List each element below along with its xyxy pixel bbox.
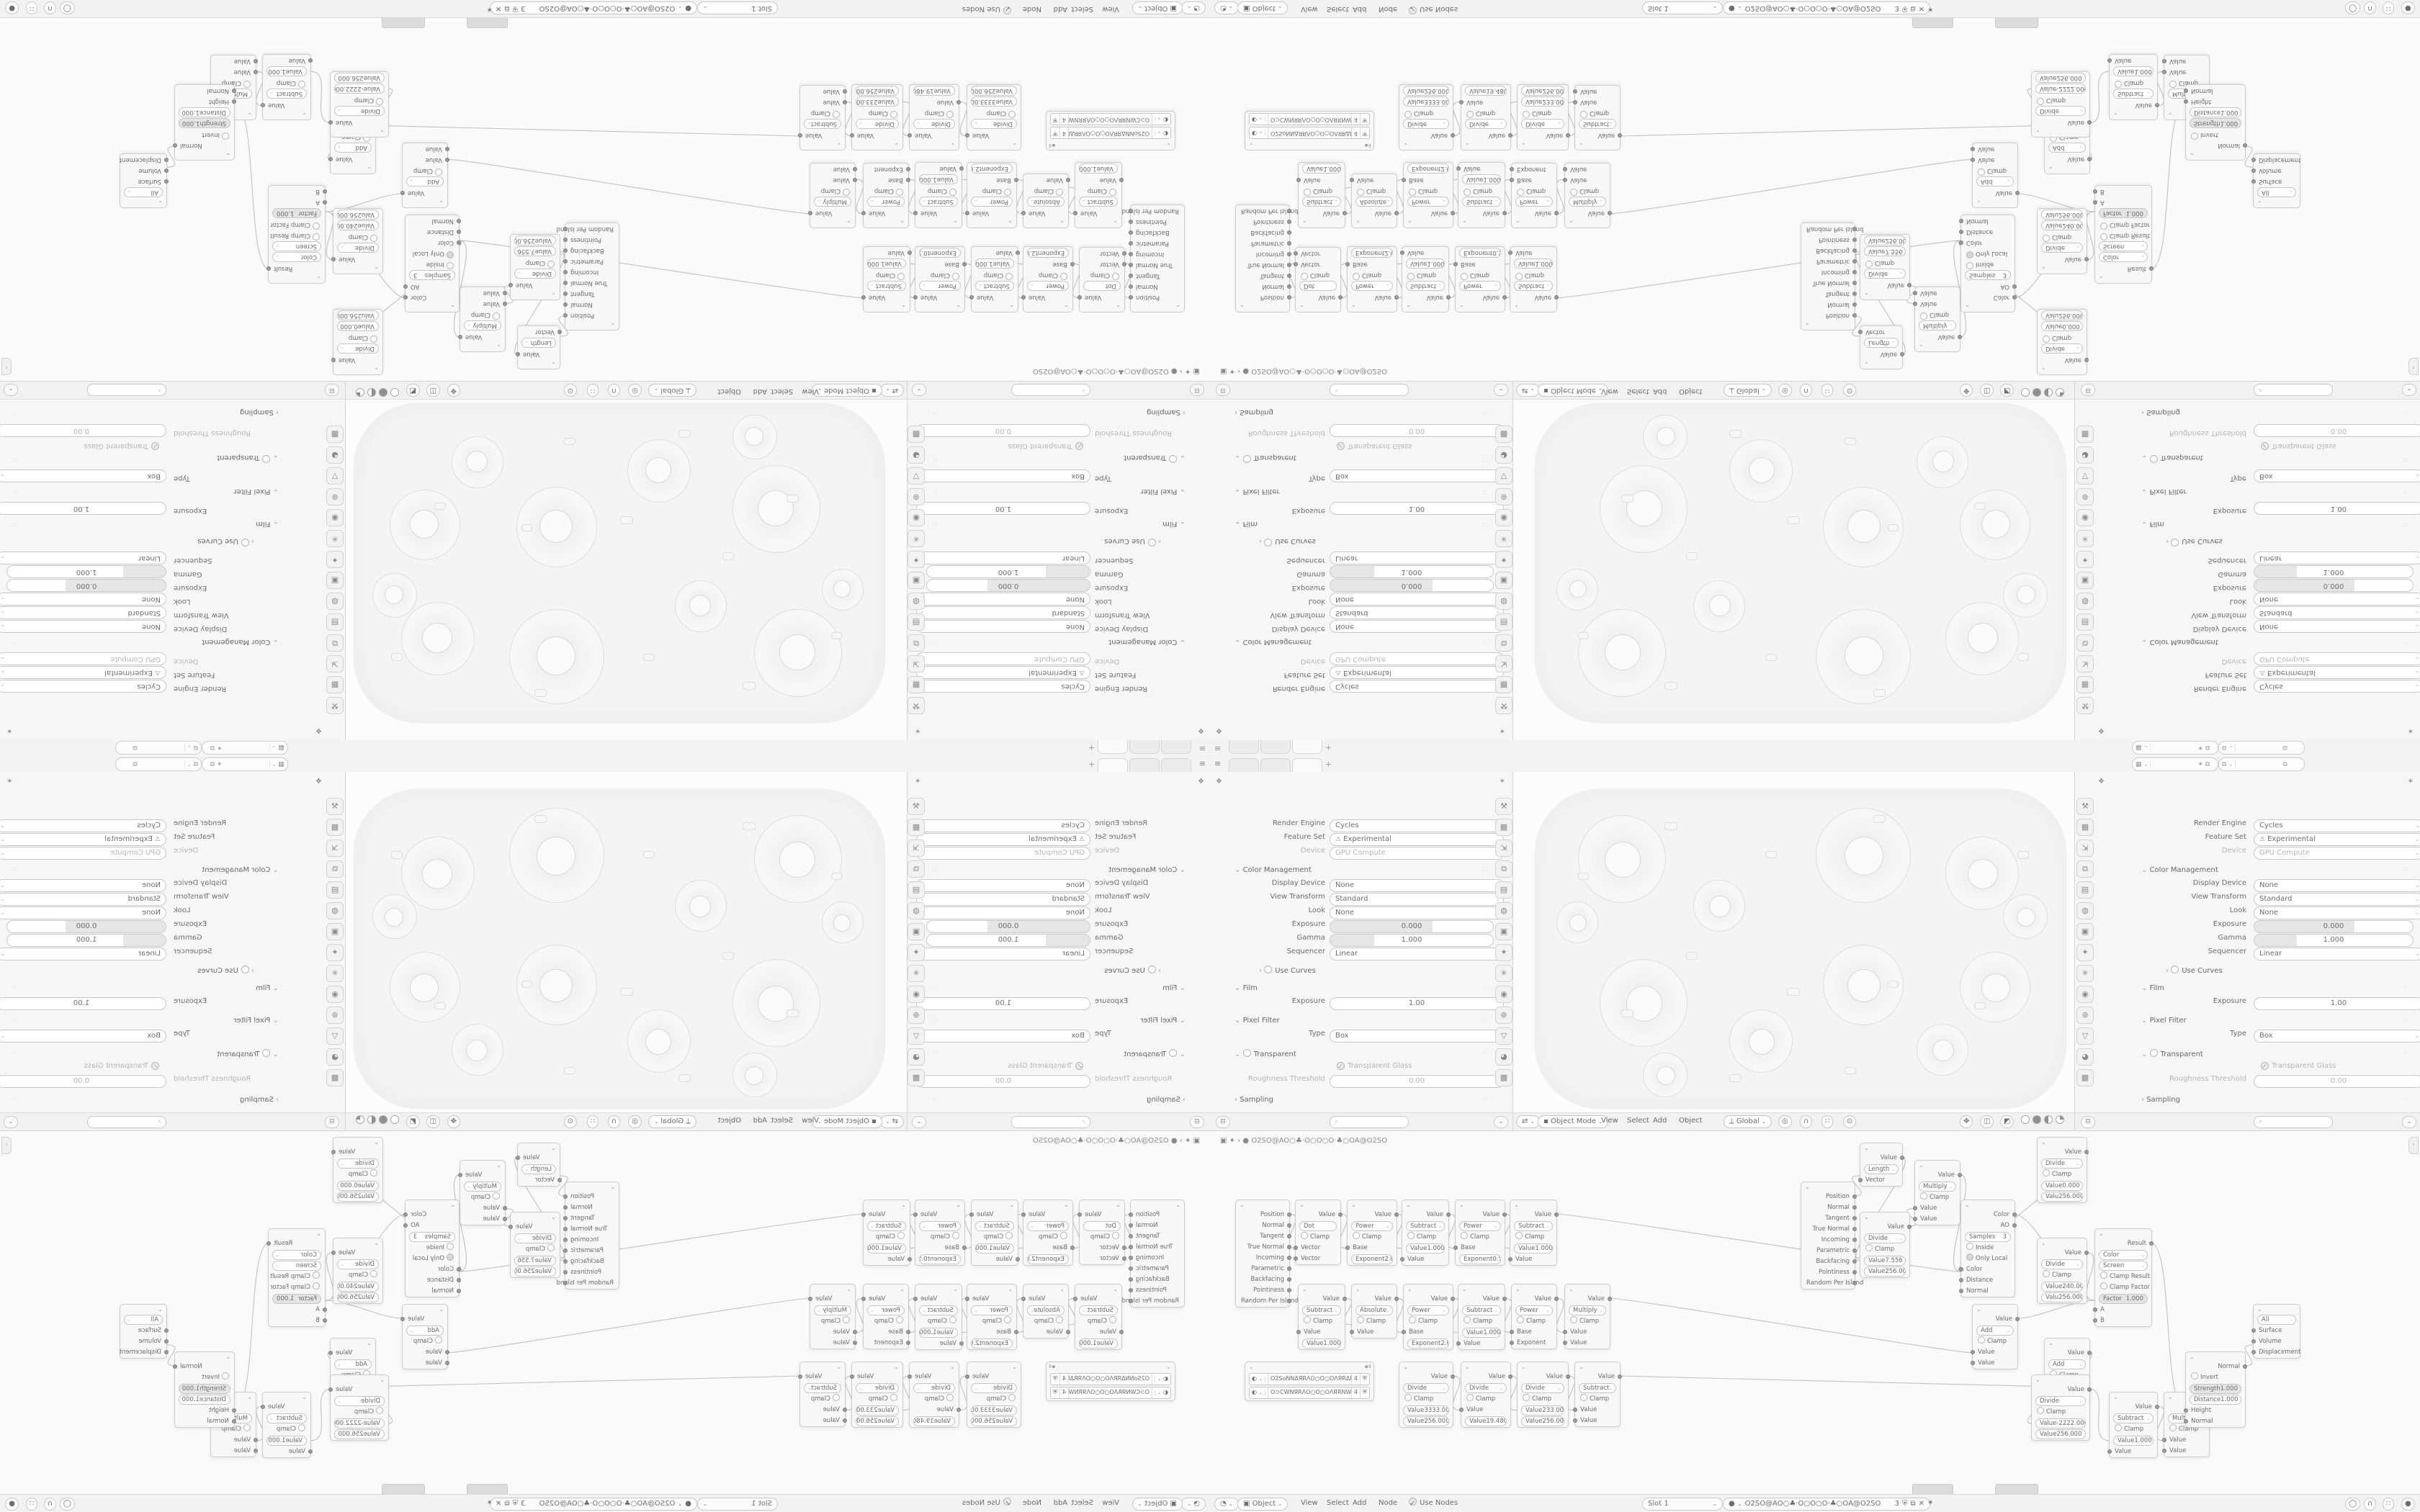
input-socket[interactable]: [1456, 166, 1461, 171]
shader-node[interactable]: ⌄ValuePower⌄ClampBaseExponent2.000: [1403, 1284, 1453, 1350]
output-socket[interactable]: [1129, 1256, 1133, 1260]
output-socket[interactable]: [563, 227, 568, 231]
operation-dropdown[interactable]: Subtract⌄: [2113, 89, 2154, 99]
copy-icon[interactable]: ⧉: [2205, 761, 2210, 768]
output-socket[interactable]: [1446, 295, 1451, 300]
node-checkbox[interactable]: [946, 1394, 954, 1401]
input-socket[interactable]: [1913, 1217, 1917, 1221]
shader-node[interactable]: ⌄ValueAbsolute⌄ClampValue: [1351, 1284, 1397, 1338]
value-field[interactable]: Valu256.000: [337, 310, 379, 320]
modifiers-tab-icon[interactable]: ✦: [907, 551, 925, 568]
panel-section[interactable]: ⌄ Pixel Filter∷: [2141, 1017, 2412, 1025]
output-socket[interactable]: [1343, 1297, 1347, 1301]
shader-node[interactable]: ⌄ValueSubtract⌄ClampValueValue1.000: [1298, 162, 1345, 228]
search-input[interactable]: ⌕: [1330, 1116, 1409, 1128]
output-socket[interactable]: [2155, 1405, 2159, 1409]
shader-node[interactable]: ⌄ValueSubtract⌄ClampValue1.000Value: [1458, 1284, 1505, 1350]
shader-node[interactable]: ⌄ValueDivide⌄ClampValue-2222.000Value256…: [330, 1374, 389, 1441]
output-socket[interactable]: [1900, 352, 1904, 356]
material-tab-icon[interactable]: ◕: [2076, 1048, 2094, 1066]
shader-node[interactable]: ⌄All⌄SurfaceVolumeDisplacement: [2253, 1304, 2300, 1359]
shader-node[interactable]: ⌄ValueDivide⌄ClampValueValue19.480: [909, 84, 959, 150]
input-socket[interactable]: [1913, 302, 1917, 306]
scene-tab-icon[interactable]: ▤: [1495, 881, 1512, 899]
output-socket[interactable]: [808, 1297, 812, 1301]
value-field[interactable]: Value0.000: [337, 321, 379, 331]
particles-tab-icon[interactable]: ✳: [907, 530, 925, 547]
node-checkbox[interactable]: [370, 336, 377, 343]
operation-dropdown[interactable]: Power⌄: [971, 1305, 1013, 1315]
value-field[interactable]: Value1.000: [1406, 258, 1445, 269]
output-socket[interactable]: [1077, 1212, 1082, 1217]
operation-dropdown[interactable]: Divide⌄: [1403, 1383, 1449, 1393]
input-socket[interactable]: [164, 179, 169, 184]
value-field[interactable]: Value256.000: [514, 235, 556, 246]
operation-dropdown[interactable]: Multiply⌄: [464, 320, 501, 330]
input-socket[interactable]: [1066, 1330, 1070, 1334]
value-field[interactable]: Strength1.000: [179, 118, 230, 128]
shader-node[interactable]: ⌄ValueDivide⌄ClampValueValue19.480: [909, 1362, 959, 1428]
fake-user-shield-icon[interactable]: ⛨: [1902, 2, 1908, 14]
value-field[interactable]: Value233.000: [856, 1405, 899, 1416]
operation-dropdown[interactable]: Divide⌄: [337, 1259, 379, 1269]
world-tab-icon[interactable]: ◍: [326, 902, 344, 919]
material-tab-icon[interactable]: ◕: [326, 1048, 344, 1066]
output-socket[interactable]: [1129, 1277, 1133, 1282]
editor-type-button[interactable]: ◔ ⌄: [1214, 1, 1239, 14]
shader-node[interactable]: ⌄ValuePower⌄ClampBaseExponent2.000: [967, 162, 1017, 228]
panel-section[interactable]: ⌄ Color Management∷: [1234, 866, 1492, 874]
shader-node[interactable]: ⌄ValueAdd⌄ClampValueValue: [1972, 1304, 2018, 1369]
input-socket[interactable]: [232, 1419, 236, 1423]
node-checkbox[interactable]: [2191, 132, 2198, 140]
node-checkbox[interactable]: [2115, 1424, 2122, 1431]
physics-tab-icon[interactable]: ◉: [2076, 509, 2094, 526]
shader-node-editor[interactable]: ▣ ✦ › ● O2SO@AO○♣·O○O○O·♣○OA@O2SO‹⌄Posit…: [0, 17, 1210, 382]
look-field[interactable]: None⌄: [916, 593, 1090, 606]
shader-node[interactable]: ⌄ResultColor⌄Screen⌄Clamp ResultClamp Fa…: [268, 185, 326, 284]
value-field[interactable]: Value1.000: [1079, 1338, 1118, 1349]
look-field[interactable]: None⌄: [2254, 593, 2420, 606]
node-collapse-icon[interactable]: ⌄: [405, 302, 459, 312]
input-socket[interactable]: [1294, 1246, 1298, 1250]
value-field[interactable]: Valu256.000: [337, 210, 379, 220]
node-checkbox[interactable]: [1301, 1232, 1308, 1239]
output-socket[interactable]: [400, 191, 405, 195]
xray-icon[interactable]: ◩: [2000, 384, 2014, 397]
output-socket[interactable]: [1451, 1374, 1455, 1379]
input-socket[interactable]: [1959, 1289, 1963, 1293]
output-socket[interactable]: [1287, 209, 1291, 213]
node-checkbox[interactable]: [952, 1232, 959, 1239]
input-socket[interactable]: [2162, 1438, 2166, 1442]
input-socket[interactable]: [1563, 1330, 1567, 1334]
node-checkbox[interactable]: [243, 1424, 251, 1431]
node-checkbox[interactable]: [949, 1316, 956, 1323]
input-socket[interactable]: [1456, 1341, 1461, 1346]
operation-dropdown[interactable]: Subtract⌄: [919, 1305, 958, 1315]
collapse-icon[interactable]: ⌄: [2402, 384, 2416, 396]
output-socket[interactable]: [1129, 295, 1133, 300]
shader-node[interactable]: ⌄ValueDivide⌄ClampValue0.000Valu256.000: [333, 309, 383, 375]
input-socket[interactable]: [445, 1350, 449, 1354]
shader-node[interactable]: ⌄ValuePower⌄ClampBaseExponent2.000: [1347, 1200, 1397, 1266]
node-checkbox[interactable]: [222, 132, 229, 140]
node-checkbox[interactable]: [2169, 1424, 2177, 1431]
output-socket[interactable]: [861, 295, 866, 300]
node-checkbox[interactable]: [2100, 233, 2107, 240]
node-checkbox[interactable]: [1357, 1316, 1364, 1323]
output-socket[interactable]: [2015, 191, 2020, 195]
output-socket[interactable]: [861, 1212, 866, 1217]
shader-node[interactable]: ⌄ValueSubtract⌄ClampValue1.000Value: [915, 1284, 962, 1350]
node-collapse-icon[interactable]: ⌄: [333, 365, 382, 374]
input-socket[interactable]: [323, 189, 327, 194]
panel-section[interactable]: ⌄ Color Management∷: [928, 866, 1186, 874]
operation-dropdown[interactable]: Absolute⌄: [1027, 197, 1065, 207]
workspace-tab[interactable]: [1229, 758, 1259, 773]
display-device-field[interactable]: None⌄: [2254, 879, 2420, 892]
snap-mode-icon[interactable]: ∷: [1821, 1115, 1833, 1128]
world-tab-icon[interactable]: ◍: [2076, 902, 2094, 919]
output-socket[interactable]: [516, 1156, 520, 1160]
shader-node[interactable]: ⌄ValueSubtract⌄ClampValue1.000Value: [863, 1200, 910, 1266]
node-collapse-icon[interactable]: ⌄: [1512, 218, 1556, 228]
input-socket[interactable]: [323, 1308, 327, 1312]
object-data-tab-icon[interactable]: ▽: [326, 1027, 344, 1045]
node-collapse-icon[interactable]: ⌄: [565, 320, 619, 330]
viewport-menu-view[interactable]: View: [802, 1115, 819, 1127]
node-checkbox[interactable]: [2043, 336, 2050, 343]
node-collapse-icon[interactable]: ⌄: [1296, 1200, 1340, 1210]
exposure-field[interactable]: 1.00: [0, 502, 166, 515]
shading-wireframe-icon[interactable]: [390, 1115, 400, 1127]
node-collapse-icon[interactable]: ⌄: [800, 140, 845, 150]
input-socket[interactable]: [1573, 89, 1577, 94]
input-socket[interactable]: [1402, 178, 1406, 182]
output-socket[interactable]: [1129, 1299, 1133, 1303]
input-socket[interactable]: [1400, 1257, 1404, 1261]
input-socket[interactable]: [557, 1178, 562, 1182]
constraints-tab-icon[interactable]: ⊛: [2076, 1007, 2094, 1024]
device-field[interactable]: GPU Compute⌄: [916, 652, 1090, 665]
view-layer-selector[interactable]: ⧉⌄⧉: [2218, 757, 2305, 771]
display-device-field[interactable]: None⌄: [1330, 620, 1504, 633]
node-collapse-icon[interactable]: ⌄: [864, 218, 908, 228]
value-field[interactable]: Value1.000: [1462, 174, 1501, 184]
add-workspace-button[interactable]: +: [1088, 743, 1095, 752]
value-field[interactable]: Value7.556: [514, 246, 556, 256]
operation-dropdown[interactable]: Absolute⌄: [1027, 1305, 1065, 1315]
render-engine-field[interactable]: Cycles⌄: [916, 680, 1090, 693]
shader-node-editor[interactable]: ▣ ✦ › ● O2SO@AO○♣·O○O○O·♣○OA@O2SO‹⌄Posit…: [0, 1130, 1210, 1495]
input-socket[interactable]: [457, 1267, 461, 1272]
output-socket[interactable]: [400, 1317, 405, 1321]
node-checkbox[interactable]: [1004, 189, 1011, 196]
sequencer-field[interactable]: Linear⌄: [1330, 948, 1504, 960]
value-field[interactable]: Value1.000: [1302, 163, 1341, 174]
section-checkbox[interactable]: [262, 455, 270, 463]
workspace-tab[interactable]: [1260, 739, 1291, 754]
operation-dropdown[interactable]: Divide⌄: [514, 269, 556, 279]
operation-dropdown[interactable]: Add⌄: [334, 1359, 372, 1369]
value-field[interactable]: Valu256.000: [337, 1192, 379, 1202]
snap-mode-icon[interactable]: ∷: [587, 384, 599, 397]
input-socket[interactable]: [164, 1339, 169, 1344]
node-collapse-icon[interactable]: ⌄: [331, 127, 388, 137]
node-checkbox[interactable]: [313, 1282, 320, 1290]
node-collapse-icon[interactable]: ⌄: [1456, 302, 1505, 312]
shader-node[interactable]: ⌄ValueDivide⌄ClampValue233.000Value256.0…: [1517, 84, 1569, 150]
pin-icon[interactable]: ✶: [1927, 1498, 1933, 1509]
shader-node[interactable]: ⌄ValueMultiply⌄ClampValueValue: [810, 163, 856, 228]
output-socket[interactable]: [1287, 1223, 1291, 1228]
value-field[interactable]: Value19.480: [913, 86, 955, 96]
physics-tab-icon[interactable]: ◉: [2076, 986, 2094, 1003]
output-tab-icon[interactable]: ⇲: [326, 655, 344, 672]
use-nodes-checkbox[interactable]: ✓Use Nodes: [962, 1498, 1011, 1509]
node-checkbox[interactable]: [2100, 1282, 2107, 1290]
output-socket[interactable]: [2087, 157, 2092, 161]
operation-dropdown[interactable]: Subtract⌄: [804, 1383, 841, 1393]
node-checkbox[interactable]: [298, 1424, 305, 1431]
input-socket[interactable]: [2162, 59, 2166, 63]
node-collapse-icon[interactable]: ⌄: [1860, 1143, 1902, 1153]
output-socket[interactable]: [1451, 133, 1455, 138]
value-field[interactable]: Value0.000: [337, 1181, 379, 1191]
operation-dropdown[interactable]: Screen⌄: [272, 1261, 321, 1271]
output-socket[interactable]: [1129, 263, 1133, 267]
output-socket[interactable]: [328, 120, 333, 125]
node-collapse-icon[interactable]: ⌄: [2038, 264, 2087, 274]
scene-selector[interactable]: ▦⌄✶⧉: [202, 757, 288, 771]
node-collapse-icon[interactable]: ⌄: [1399, 1362, 1453, 1372]
output-socket[interactable]: [1021, 1212, 1026, 1217]
operation-dropdown[interactable]: Multiply⌄: [1919, 320, 1956, 330]
shader-node[interactable]: ⌄ValueDivide⌄ClampValue0.000Valu256.000: [2037, 1137, 2087, 1203]
output-socket[interactable]: [965, 211, 969, 215]
input-socket[interactable]: [1913, 291, 1917, 295]
node-checkbox[interactable]: [313, 233, 320, 240]
datablock-selector[interactable]: ◐⌄O⊃CWNЯRΛO○O○OΛЯRNWC⊃O4⛨: [1050, 113, 1171, 125]
operation-dropdown[interactable]: All⌄: [2257, 1315, 2296, 1325]
operation-dropdown[interactable]: All⌄: [2257, 187, 2296, 197]
panel-section[interactable]: ⌄ Pixel Filter∷: [928, 487, 1186, 495]
shader-node[interactable]: ⌄All⌄SurfaceVolumeDisplacement: [2253, 153, 2300, 208]
output-socket[interactable]: [331, 1251, 336, 1255]
operation-dropdown[interactable]: Power⌄: [1351, 1221, 1393, 1231]
input-socket[interactable]: [1400, 251, 1404, 255]
tool-tab-icon[interactable]: ⚒: [1495, 798, 1512, 815]
input-socket[interactable]: [457, 1289, 461, 1293]
input-socket[interactable]: [1959, 230, 1963, 234]
output-socket[interactable]: [1129, 241, 1133, 246]
shader-node[interactable]: ⌄ValueDivide⌄ClampValue7.556Value256.000: [510, 234, 560, 300]
output-socket[interactable]: [1287, 1245, 1291, 1249]
output-socket[interactable]: [1852, 248, 1857, 253]
output-socket[interactable]: [913, 1297, 918, 1301]
panel-section[interactable]: ⌄ Transparent∷: [1234, 454, 1492, 463]
exposure-field[interactable]: 1.00: [0, 997, 166, 1010]
node-checkbox[interactable]: [447, 1243, 454, 1250]
material-datablock[interactable]: ●⌄ O2SO@AO○♣·O○O○O·♣○OA@O2SO 3 ⛨ ⧉ ✕: [1723, 1498, 1930, 1511]
node-collapse-icon[interactable]: ⌄: [405, 1200, 459, 1210]
input-socket[interactable]: [853, 1330, 857, 1334]
output-socket[interactable]: [266, 266, 271, 271]
tool-tab-icon[interactable]: ⚒: [907, 798, 925, 815]
output-socket[interactable]: [1446, 1212, 1451, 1217]
input-socket[interactable]: [1959, 240, 1963, 245]
operation-dropdown[interactable]: Subtract⌄: [1406, 1221, 1445, 1231]
texture-tab-icon[interactable]: ▩: [2076, 1069, 2094, 1086]
value-field[interactable]: Value256.000: [971, 1416, 1017, 1426]
node-checkbox[interactable]: [1109, 189, 1116, 196]
scene-selector[interactable]: ▦⌄✶⧉: [2132, 757, 2218, 771]
node-checkbox[interactable]: [1461, 1232, 1468, 1239]
panel-section[interactable]: ⌄ Pixel Filter∷: [1234, 487, 1492, 495]
operation-dropdown[interactable]: Subtract⌄: [975, 1221, 1014, 1231]
node-collapse-icon[interactable]: ⌄: [263, 1392, 310, 1402]
partial-node[interactable]: [1995, 1484, 2038, 1495]
node-collapse-icon[interactable]: ⌄: [1961, 302, 2015, 312]
particles-tab-icon[interactable]: ✳: [1495, 965, 1512, 982]
operation-dropdown[interactable]: Length⌄: [1864, 1164, 1899, 1174]
datablock-selector[interactable]: ◐⌄O⊃CWNЯRΛO○O○OΛЯRNWC⊃O4⛨: [1249, 1387, 1370, 1399]
look-field[interactable]: None⌄: [0, 906, 166, 919]
panel-section[interactable]: ⌄ Film∷: [2141, 520, 2412, 528]
output-socket[interactable]: [328, 1351, 333, 1355]
orientation-selector[interactable]: ⟂ Global ⌄: [1724, 1115, 1772, 1128]
shader-node[interactable]: ⌄PositionNormalTangentTrue NormalIncomin…: [1235, 1200, 1290, 1308]
node-menu-select[interactable]: Select: [1327, 3, 1349, 14]
shader-node[interactable]: ⌄ValuePower⌄ClampBaseExponent0.500: [1455, 246, 1505, 312]
output-socket[interactable]: [1554, 211, 1559, 215]
output-socket[interactable]: [508, 283, 513, 287]
shader-node[interactable]: ⌄ValueDivide⌄ClampValue7.556Value256.000: [510, 1212, 560, 1278]
input-socket[interactable]: [2251, 179, 2256, 184]
shader-node[interactable]: ⌄ValueDivide⌄ClampValue3333.000Value256.…: [1399, 84, 1453, 150]
output-socket[interactable]: [261, 1405, 265, 1409]
shader-node[interactable]: ⌄ValueSubtract⌄ClampValue1.000Value: [863, 246, 910, 312]
node-checkbox[interactable]: [1301, 273, 1308, 280]
node-collapse-icon[interactable]: ⌄: [1973, 198, 2017, 207]
input-socket[interactable]: [1971, 1350, 1975, 1354]
output-socket[interactable]: [1852, 1259, 1857, 1264]
input-socket[interactable]: [445, 158, 449, 162]
workspace-tab[interactable]: [1229, 739, 1259, 754]
copy-icon[interactable]: ⧉: [504, 2, 509, 14]
panel-section[interactable]: › Sampling∷: [8, 1096, 279, 1104]
output-socket[interactable]: [563, 259, 568, 264]
datablock-selector[interactable]: ◐⌄O2SoNNΔЯRΛO○O○OΛЯRΔNNo2SO4⛨: [1249, 127, 1370, 139]
output-socket[interactable]: [563, 1194, 568, 1199]
view-layer-tab-icon[interactable]: ⧉: [2076, 634, 2094, 652]
node-collapse-icon[interactable]: ⌄: [864, 1284, 908, 1294]
particles-tab-icon[interactable]: ✳: [1495, 530, 1512, 547]
output-socket[interactable]: [2243, 143, 2247, 148]
node-checkbox[interactable]: [1580, 1394, 1587, 1401]
input-socket[interactable]: [1563, 167, 1567, 171]
shader-node[interactable]: ⌄ColorAOSamples3InsideOnly LocalColorDis…: [405, 215, 460, 312]
node-checkbox[interactable]: [1304, 1316, 1311, 1323]
output-socket[interactable]: [861, 1297, 866, 1301]
overlays-icon[interactable]: ◫: [1980, 384, 1994, 397]
shader-node[interactable]: ⌄ValueSubtract⌄ClampValue1.000Value: [971, 246, 1018, 312]
output-socket[interactable]: [563, 238, 568, 242]
pin-icon[interactable]: ✶: [915, 778, 920, 786]
input-socket[interactable]: [906, 167, 910, 171]
input-socket[interactable]: [2184, 1419, 2188, 1423]
operation-dropdown[interactable]: Divide⌄: [334, 1396, 385, 1406]
output-socket[interactable]: [913, 295, 918, 300]
output-socket[interactable]: [563, 248, 568, 253]
output-socket[interactable]: [1077, 295, 1082, 300]
sequencer-field[interactable]: Linear⌄: [1330, 552, 1504, 564]
node-collapse-icon[interactable]: ⌄: [1565, 1284, 1610, 1294]
operation-dropdown[interactable]: Divide⌄: [1864, 269, 1906, 279]
input-socket[interactable]: [2184, 99, 2188, 104]
output-socket[interactable]: [1852, 259, 1857, 264]
input-socket[interactable]: [1350, 178, 1354, 182]
value-field[interactable]: Value1.000: [919, 174, 958, 184]
node-collapse-icon[interactable]: ⌄: [331, 1375, 388, 1385]
output-socket[interactable]: [563, 1227, 568, 1231]
value-field[interactable]: Value-2222.000: [334, 1418, 385, 1428]
pin-icon[interactable]: ✶: [1500, 778, 1505, 786]
input-socket[interactable]: [906, 1341, 910, 1345]
operation-dropdown[interactable]: Add⌄: [1976, 176, 2014, 186]
input-socket[interactable]: [1453, 262, 1458, 266]
value-field[interactable]: Value233.000: [1521, 96, 1564, 107]
world-tab-icon[interactable]: ◍: [907, 593, 925, 610]
partial-node[interactable]: [1995, 17, 2038, 28]
node-collapse-icon[interactable]: ⌄: [1075, 218, 1121, 228]
partial-node[interactable]: [467, 1484, 508, 1495]
shader-node[interactable]: ⌄ValuePower⌄ClampBaseExponent: [863, 1284, 909, 1349]
node-collapse-icon[interactable]: ⌄: [910, 140, 959, 150]
view-layer-tab-icon[interactable]: ⧉: [907, 860, 925, 878]
snap-magnet-icon[interactable]: ∩: [608, 384, 620, 397]
panel-section[interactable]: ⌄ Pixel Filter∷: [928, 1017, 1186, 1025]
shader-node[interactable]: ⌄ValueMultiply⌄ClampValueValue: [460, 1160, 506, 1225]
snap-mode-icon[interactable]: ∷: [26, 1498, 37, 1511]
node-checkbox[interactable]: [547, 1244, 555, 1251]
node-collapse-icon[interactable]: ⌄: [810, 218, 855, 228]
input-socket[interactable]: [254, 59, 258, 63]
type-field[interactable]: Box⌄: [0, 469, 166, 482]
shader-node[interactable]: ⌄▪4◐⌄O2SoNNΔЯRΛO○O○OΛЯRΔNNo2SO4⛨◐⌄O⊃CWNЯ…: [1046, 1362, 1175, 1401]
output-socket[interactable]: [2149, 1241, 2154, 1246]
pin-icon[interactable]: ✶: [487, 1498, 493, 1509]
node-checkbox[interactable]: [1523, 1394, 1530, 1401]
input-socket[interactable]: [1296, 178, 1301, 182]
value-field[interactable]: Valu256.000: [337, 1292, 379, 1302]
node-menu-select[interactable]: Select: [1327, 1498, 1349, 1509]
value-field[interactable]: Value256.000: [1864, 235, 1906, 246]
output-socket[interactable]: [563, 1205, 568, 1210]
output-socket[interactable]: [1907, 1225, 1912, 1229]
view-transform-field[interactable]: Standard⌄: [1330, 606, 1504, 619]
node-collapse-icon[interactable]: ⌄: [1296, 302, 1340, 312]
render-engine-field[interactable]: Cycles⌄: [916, 819, 1090, 832]
overlay-circle-icon[interactable]: ◯: [60, 1, 75, 14]
value-field[interactable]: Value256.000: [1864, 1266, 1906, 1277]
node-checkbox[interactable]: [1978, 168, 1985, 176]
output-socket[interactable]: [328, 1387, 333, 1392]
search-input[interactable]: ⌕: [2254, 1116, 2333, 1128]
world-tab-icon[interactable]: ◍: [326, 593, 344, 610]
output-socket[interactable]: [331, 1150, 336, 1154]
